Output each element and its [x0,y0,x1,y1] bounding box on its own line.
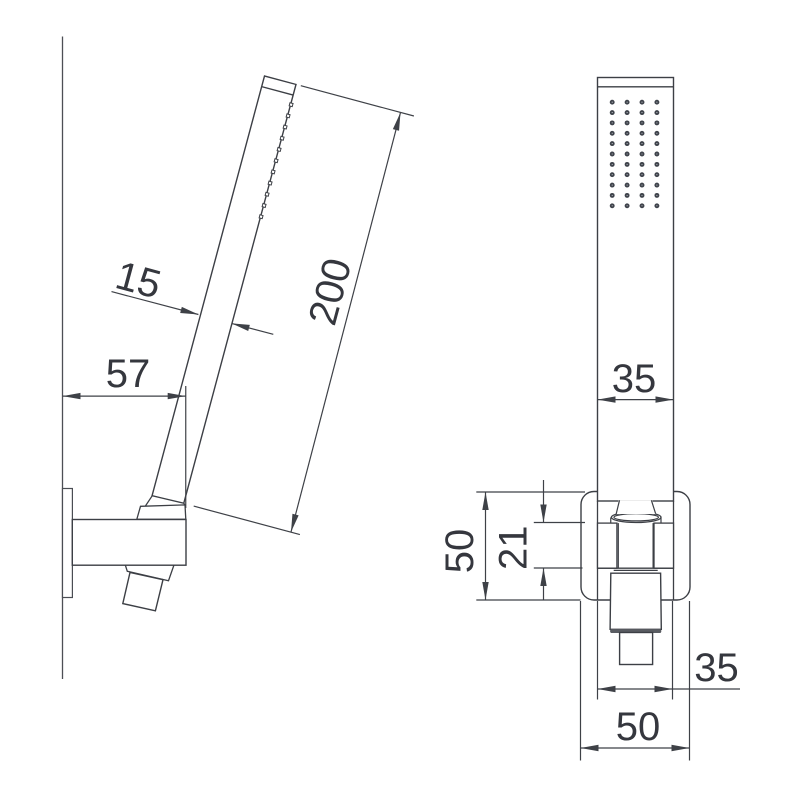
svg-text:57: 57 [106,352,151,396]
svg-text:50: 50 [616,705,661,749]
svg-text:50: 50 [438,529,482,574]
svg-text:35: 35 [612,357,657,401]
svg-text:21: 21 [492,526,536,571]
svg-text:35: 35 [694,646,739,690]
